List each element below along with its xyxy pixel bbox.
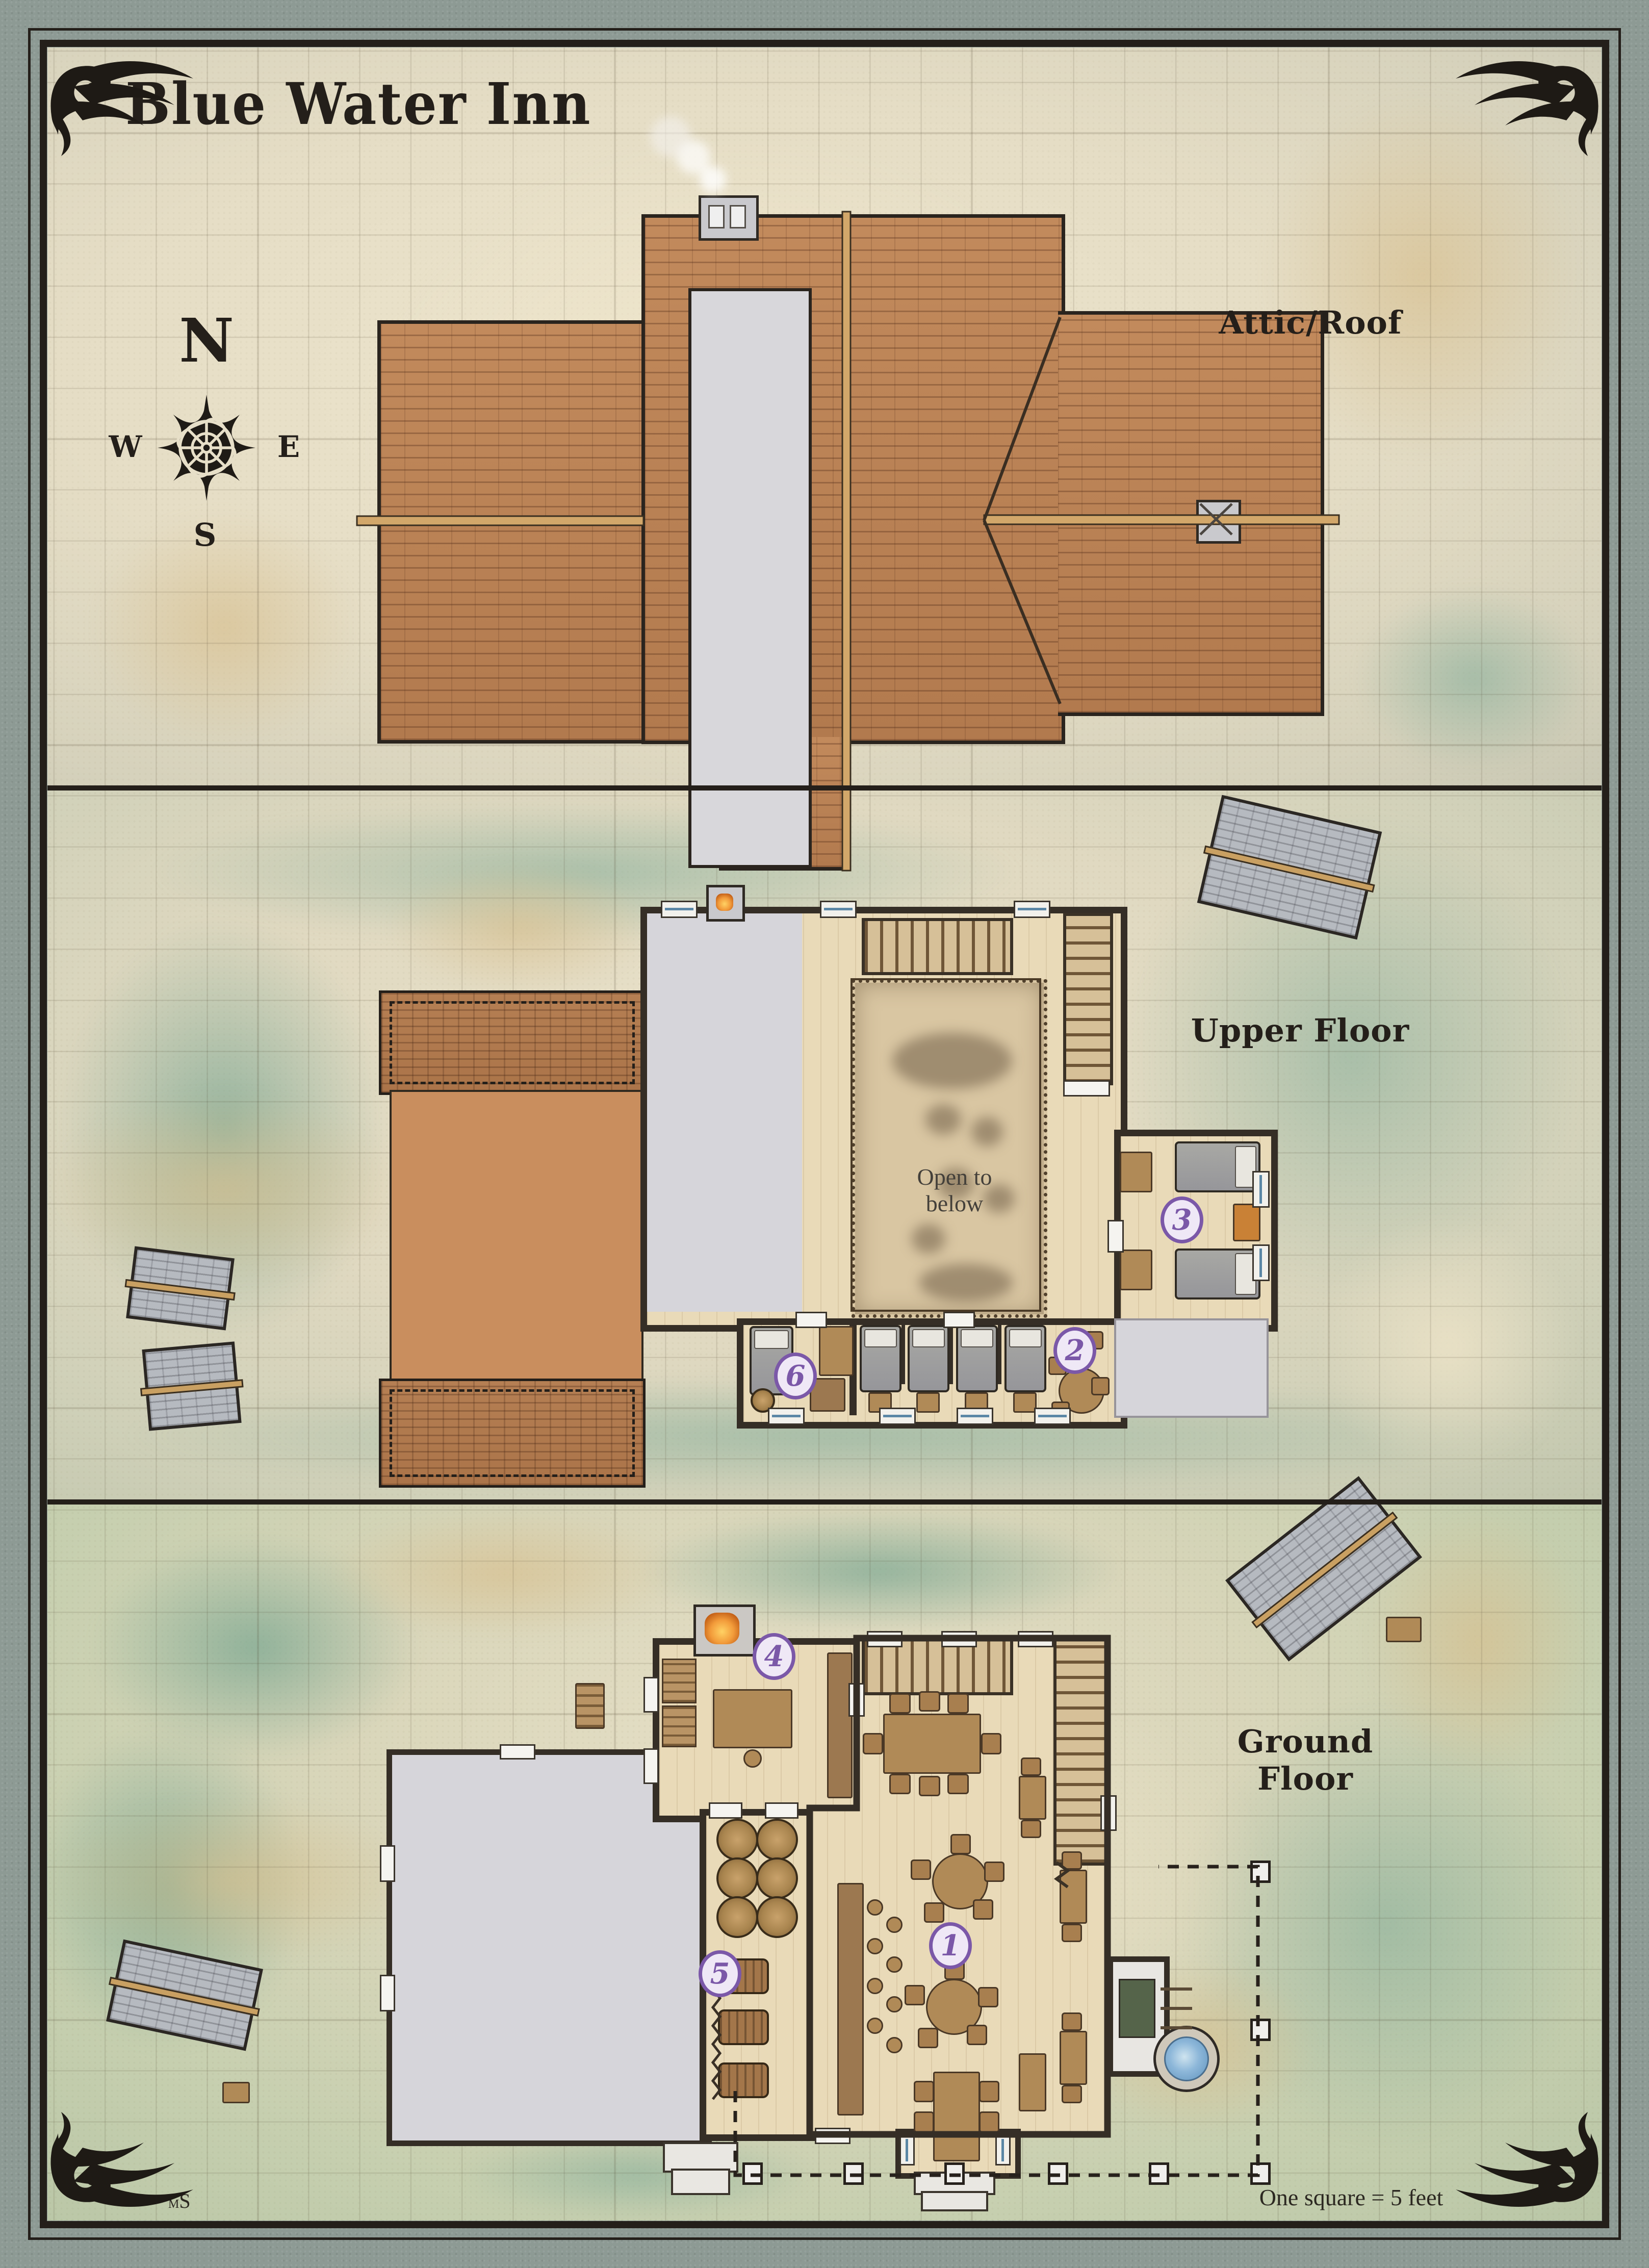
planter xyxy=(1119,1979,1155,2038)
chair xyxy=(979,2081,999,2102)
chair xyxy=(889,1693,911,1714)
woodpile xyxy=(1386,1617,1422,1642)
badge-5: 5 xyxy=(699,1950,741,1997)
keg xyxy=(756,1896,798,1938)
attic-label: Attic/Roof xyxy=(1203,304,1418,341)
bed xyxy=(1004,1325,1046,1392)
keg xyxy=(716,1819,758,1861)
signature-small: M xyxy=(168,2198,179,2211)
chimney-icon xyxy=(699,195,759,241)
side-table xyxy=(1019,1776,1046,1820)
keg xyxy=(756,1819,798,1861)
chair xyxy=(947,1774,969,1794)
chair xyxy=(863,1733,883,1754)
shelf xyxy=(662,1705,697,1747)
chimney-icon xyxy=(706,885,745,922)
long-table xyxy=(883,1714,981,1774)
chair xyxy=(1062,1851,1082,1870)
door xyxy=(643,1748,659,1784)
bed-divider xyxy=(949,1322,953,1384)
shadow-blob xyxy=(971,1117,1003,1146)
stool xyxy=(743,1749,762,1768)
bed-divider xyxy=(998,1322,1001,1384)
window xyxy=(879,1408,916,1425)
stairs xyxy=(1053,1635,1111,1866)
fence-post-icon xyxy=(742,2162,763,2185)
ground-floor-label: Ground Floor xyxy=(1198,1723,1412,1797)
window xyxy=(995,2135,1011,2165)
terrain-blob xyxy=(46,1091,403,1285)
badge-4: 4 xyxy=(753,1633,795,1680)
shed-ridge xyxy=(109,1977,260,2017)
dresser xyxy=(819,1326,854,1376)
terrain-blob xyxy=(326,1510,683,1637)
chair xyxy=(919,1776,940,1796)
open-to-below-label: Open to below xyxy=(888,1164,1021,1216)
badge-1-number: 1 xyxy=(941,1929,961,1963)
door xyxy=(380,1975,395,2011)
roof-east-wing xyxy=(1058,311,1324,716)
bar-counter xyxy=(837,1883,864,2116)
door xyxy=(848,1683,865,1717)
window xyxy=(661,901,698,918)
badge-2-number: 2 xyxy=(1065,1334,1085,1367)
bed xyxy=(908,1325,949,1392)
chair xyxy=(924,1902,944,1923)
chest xyxy=(1013,1392,1037,1413)
panel-divider xyxy=(47,785,1602,791)
keg xyxy=(716,1896,758,1938)
chair xyxy=(978,1987,998,2007)
counter xyxy=(827,1652,853,1798)
bed xyxy=(1175,1141,1260,1192)
barrel xyxy=(718,2062,769,2098)
panel-divider xyxy=(47,1499,1602,1505)
stairhall-gray xyxy=(647,913,802,1312)
compass-rose-icon xyxy=(150,392,263,504)
terrain-blob xyxy=(51,1795,418,1964)
door xyxy=(380,1845,395,1882)
shadow-blob xyxy=(912,1224,945,1254)
door xyxy=(765,1802,798,1819)
shadow-blob xyxy=(919,1264,1013,1302)
fence-post-icon xyxy=(1250,2162,1271,2185)
shed-ridge xyxy=(140,1379,244,1396)
stool xyxy=(886,1956,903,1973)
badge-2: 2 xyxy=(1053,1327,1096,1374)
door xyxy=(709,1802,742,1819)
badge-3-number: 3 xyxy=(1172,1203,1192,1237)
window xyxy=(899,2135,915,2165)
window xyxy=(1252,1244,1270,1281)
shed-ridge xyxy=(124,1279,235,1301)
compass-east-label: E xyxy=(263,429,314,464)
chair xyxy=(1091,1377,1110,1395)
stool xyxy=(886,1996,903,2012)
badge-3: 3 xyxy=(1161,1196,1203,1243)
chair xyxy=(1021,1757,1041,1776)
door xyxy=(943,1312,975,1328)
chair xyxy=(914,2081,934,2102)
bed xyxy=(1175,1248,1260,1299)
artist-signature: MS xyxy=(168,2189,191,2213)
terrain-blob xyxy=(388,862,653,995)
prep-table xyxy=(713,1689,792,1748)
terrain-blob xyxy=(1316,1214,1581,1479)
chest xyxy=(916,1392,940,1413)
west-wing-brick-south xyxy=(379,1379,646,1488)
window xyxy=(768,1408,805,1425)
terrain-blob xyxy=(1356,587,1591,770)
stool xyxy=(886,2037,903,2053)
stool xyxy=(867,2018,883,2034)
keg xyxy=(716,1857,758,1899)
chimney-flue xyxy=(730,205,746,228)
door xyxy=(1107,1220,1124,1253)
door xyxy=(815,2128,851,2144)
chair xyxy=(914,2111,934,2133)
side-table xyxy=(1019,2053,1046,2111)
hearth-fire xyxy=(705,1613,739,1644)
nightstand xyxy=(1233,1204,1260,1241)
badge-4-number: 4 xyxy=(764,1640,784,1673)
chair xyxy=(1062,1924,1082,1942)
stool xyxy=(867,1978,883,1994)
chair xyxy=(918,2028,938,2048)
chair xyxy=(919,1691,940,1712)
desk xyxy=(1120,1152,1152,1192)
shed-ridge xyxy=(1203,845,1375,893)
chair xyxy=(950,1834,971,1854)
long-table xyxy=(933,2072,980,2161)
attic-interior xyxy=(688,288,812,868)
window xyxy=(1014,901,1050,918)
door xyxy=(643,1677,659,1713)
shadow-blob xyxy=(892,1033,1012,1089)
chair xyxy=(911,1859,931,1880)
stool xyxy=(867,1899,883,1916)
shed xyxy=(142,1341,241,1431)
compass-south-label: S xyxy=(179,516,230,553)
roof-ridgeline xyxy=(381,520,638,524)
chair xyxy=(905,1985,925,2005)
fence-post-icon xyxy=(843,2162,864,2185)
window xyxy=(957,1408,993,1425)
window xyxy=(820,901,857,918)
scale-note: One square = 5 feet xyxy=(1224,2184,1479,2211)
window xyxy=(1034,1408,1071,1425)
badge-6: 6 xyxy=(774,1353,817,1399)
bed xyxy=(860,1325,901,1392)
chimney-icon xyxy=(1196,500,1241,544)
fence-post-icon xyxy=(1250,1861,1271,1883)
shelf xyxy=(662,1659,697,1703)
lower-roof-flat xyxy=(1114,1318,1269,1418)
chair xyxy=(984,1862,1004,1882)
compass-west-label: W xyxy=(100,429,151,464)
chimney-flue xyxy=(708,205,725,228)
porch-steps xyxy=(663,2142,738,2173)
window xyxy=(1252,1171,1270,1208)
porch-steps xyxy=(921,2191,988,2211)
chair xyxy=(1062,2085,1082,2103)
fence-post-icon xyxy=(1149,2162,1169,2185)
roof-west-wing xyxy=(377,320,649,744)
window xyxy=(941,1631,977,1647)
crate xyxy=(222,2082,250,2103)
chair xyxy=(981,1733,1001,1754)
door xyxy=(1063,1080,1110,1097)
chair xyxy=(973,1899,993,1920)
chair xyxy=(979,2111,999,2133)
stairs xyxy=(862,918,1013,975)
shadow-blob xyxy=(925,1104,961,1135)
porch-steps xyxy=(671,2169,730,2195)
hearth-glow xyxy=(716,894,733,911)
map-canvas: Blue Water Inn N W E S Attic/Roof Upper … xyxy=(0,0,1649,2268)
chair xyxy=(947,1693,969,1714)
chair xyxy=(1021,1820,1041,1838)
chair xyxy=(967,2025,987,2045)
west-wing-brick-north xyxy=(379,990,646,1095)
fence-post-icon xyxy=(1250,2019,1271,2041)
stool xyxy=(867,1938,883,1954)
side-table xyxy=(1060,2031,1087,2085)
bed xyxy=(956,1325,998,1392)
bed-divider xyxy=(901,1322,905,1384)
fence-post-icon xyxy=(1048,2162,1068,2185)
map-title: Blue Water Inn xyxy=(125,70,591,138)
badge-1: 1 xyxy=(929,1922,972,1969)
window xyxy=(1100,1795,1117,1831)
chair xyxy=(1062,2012,1082,2031)
desk xyxy=(1120,1250,1152,1290)
roof-east-block xyxy=(844,214,1065,744)
shed xyxy=(126,1246,235,1331)
stool xyxy=(886,1917,903,1933)
chair xyxy=(889,1774,911,1794)
west-wing-flat-roof xyxy=(390,1090,643,1383)
badge-5-number: 5 xyxy=(710,1957,730,1991)
cart xyxy=(575,1683,605,1729)
fountain-icon xyxy=(1153,2026,1220,2092)
stairs xyxy=(1063,913,1113,1085)
door xyxy=(795,1312,827,1328)
compass-north-label: N xyxy=(168,305,245,376)
door xyxy=(500,1744,535,1760)
barrel xyxy=(718,2009,769,2045)
window xyxy=(867,1631,903,1647)
signature-large: S xyxy=(179,2189,190,2212)
fence-post-icon xyxy=(944,2162,965,2185)
badge-6-number: 6 xyxy=(786,1359,806,1393)
window xyxy=(1018,1631,1053,1647)
side-table xyxy=(1060,1870,1087,1924)
keg xyxy=(756,1857,798,1899)
upper-floor-label: Upper Floor xyxy=(1188,1012,1412,1049)
